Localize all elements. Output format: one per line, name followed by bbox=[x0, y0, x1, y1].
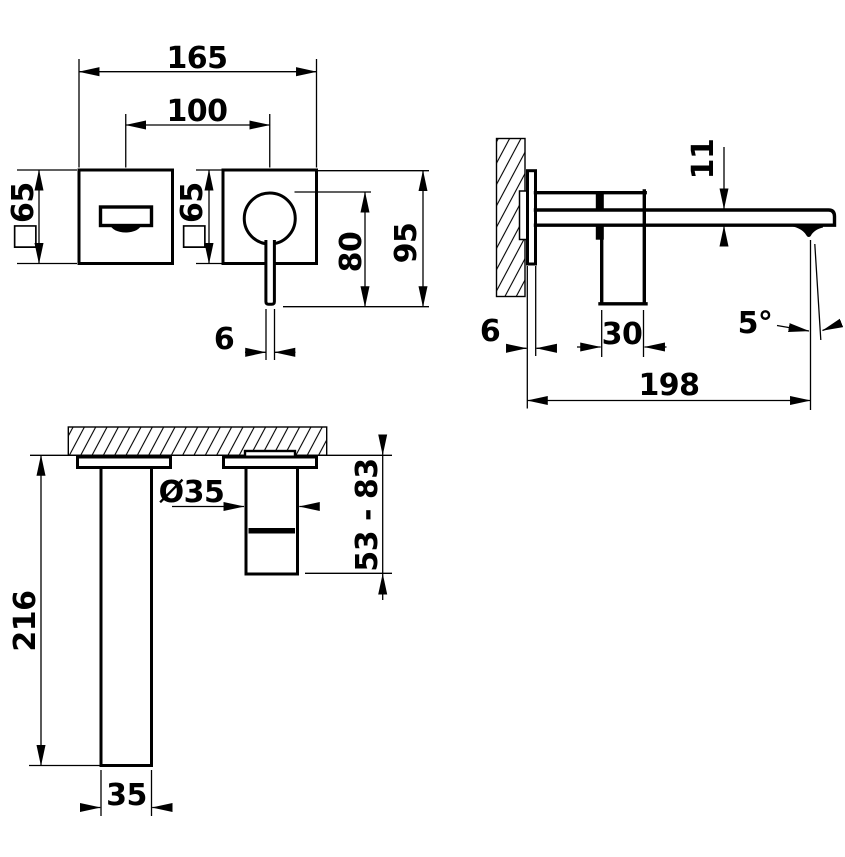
dim-body-width: 35 bbox=[80, 770, 173, 816]
dim-label-6-lever: 6 bbox=[214, 322, 234, 357]
escutcheon-left-edge bbox=[78, 457, 171, 468]
dim-adjustable-depth: 53 - 83 bbox=[305, 437, 392, 600]
dim-handle-body-width: 30 bbox=[577, 310, 667, 357]
technical-drawing: 165 100 □65 □65 80 bbox=[0, 0, 845, 857]
concealed-body-pipe bbox=[101, 466, 152, 766]
dim-label-100: 100 bbox=[166, 94, 227, 129]
dim-spout-height: 11 bbox=[686, 139, 724, 244]
dim-label-square65-right: □65 bbox=[175, 182, 210, 251]
installation-view: Ø35 53 - 83 216 35 bbox=[8, 427, 392, 816]
dim-centers-distance: 100 bbox=[126, 94, 270, 168]
dim-label-dia35: Ø35 bbox=[159, 475, 225, 510]
dim-label-198: 198 bbox=[638, 368, 699, 403]
handle-lever bbox=[266, 240, 275, 304]
spout-plate bbox=[79, 170, 173, 264]
spout-tube-side bbox=[536, 210, 835, 225]
dim-spout-reach: 198 bbox=[527, 368, 810, 403]
side-view: 11 6 30 5° 198 bbox=[480, 139, 840, 411]
dim-lever-width: 6 bbox=[214, 309, 296, 360]
dim-label-11: 11 bbox=[686, 139, 721, 180]
dim-spout-angle: 5° bbox=[738, 240, 840, 410]
aerator-side bbox=[788, 224, 823, 238]
adjustment-joint-band bbox=[249, 528, 296, 534]
handle-block-side bbox=[596, 191, 646, 304]
dim-label-5deg: 5° bbox=[738, 306, 773, 341]
dim-label-30: 30 bbox=[602, 317, 643, 352]
front-view: 165 100 □65 □65 80 bbox=[6, 41, 429, 360]
dim-body-length: 216 bbox=[8, 455, 100, 765]
dim-label-53-83: 53 - 83 bbox=[350, 458, 385, 571]
dim-label-165: 165 bbox=[166, 41, 227, 76]
dim-label-square65-left: □65 bbox=[6, 182, 41, 251]
dim-label-216: 216 bbox=[8, 590, 43, 651]
dim-handle-plate-size: □65 bbox=[175, 170, 222, 264]
valve-cylinder bbox=[246, 466, 298, 574]
wall-plate-side bbox=[528, 171, 536, 264]
escutcheon-right-edge bbox=[224, 457, 317, 468]
dim-label-6-plate: 6 bbox=[480, 314, 500, 349]
dim-spout-plate-size: □65 bbox=[6, 170, 77, 264]
dim-label-35: 35 bbox=[106, 778, 147, 813]
dim-label-95: 95 bbox=[389, 223, 424, 264]
dim-label-80: 80 bbox=[334, 232, 369, 273]
